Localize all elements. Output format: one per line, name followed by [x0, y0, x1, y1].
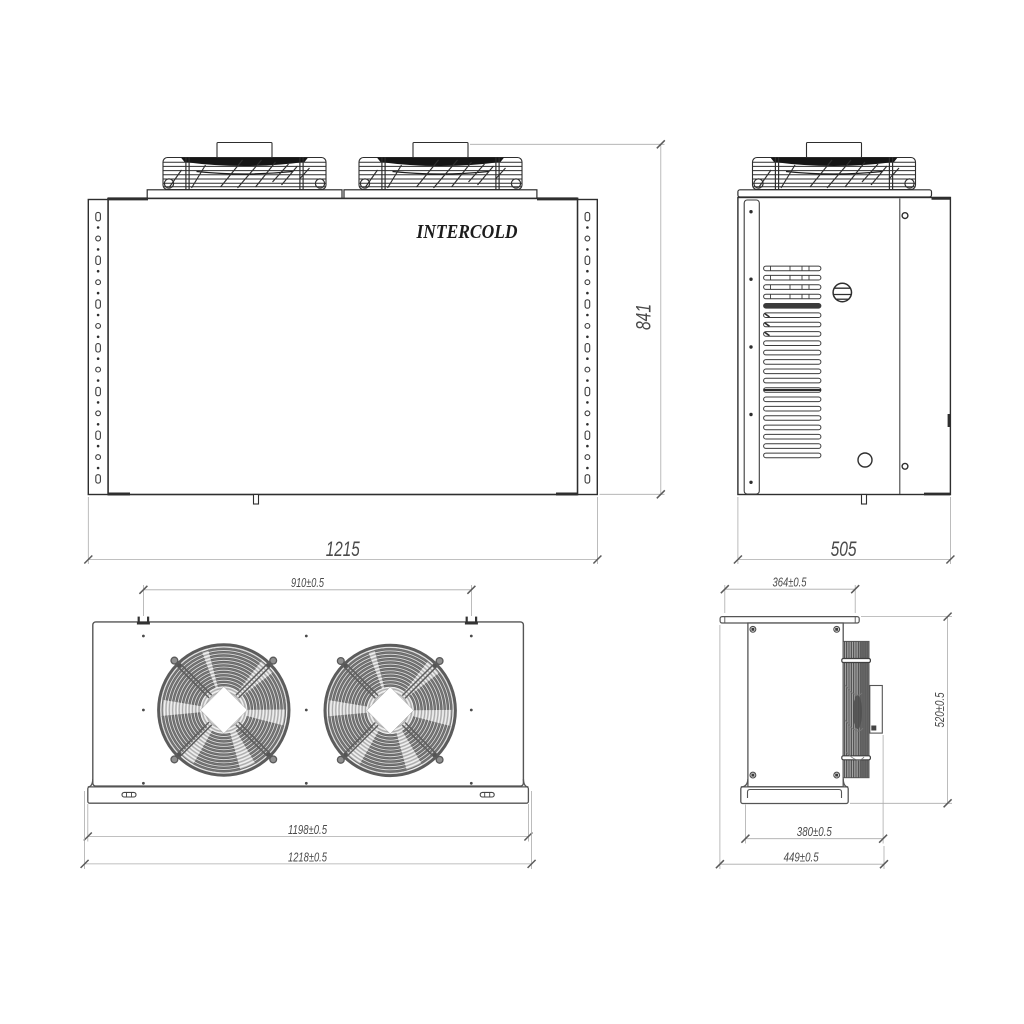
- svg-text:380±0.5: 380±0.5: [797, 825, 832, 839]
- svg-text:1215: 1215: [326, 538, 360, 561]
- svg-text:1198±0.5: 1198±0.5: [288, 823, 327, 837]
- svg-text:364±0.5: 364±0.5: [773, 576, 807, 590]
- svg-text:520±0.5: 520±0.5: [933, 692, 947, 727]
- svg-text:INTERCOLD: INTERCOLD: [416, 222, 518, 243]
- svg-text:449±0.5: 449±0.5: [784, 851, 819, 865]
- svg-text:505: 505: [831, 538, 857, 561]
- svg-text:910±0.5: 910±0.5: [291, 576, 324, 590]
- svg-text:841: 841: [633, 304, 656, 330]
- svg-text:1218±0.5: 1218±0.5: [288, 850, 327, 864]
